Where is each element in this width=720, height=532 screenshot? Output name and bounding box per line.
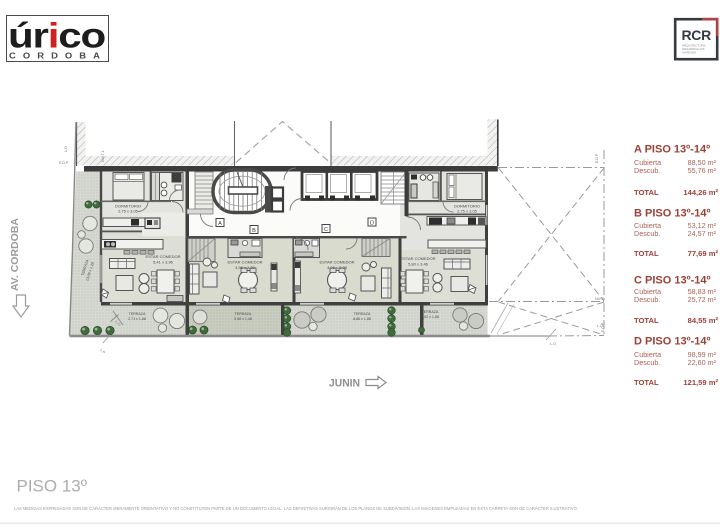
svg-text:Descub.: Descub. <box>634 295 660 304</box>
svg-text:144,26 m²: 144,26 m² <box>683 188 718 197</box>
svg-text:E.D.P: E.D.P <box>59 161 69 165</box>
svg-text:NIV.T.1: NIV.T.1 <box>101 151 105 162</box>
svg-text:4,95 x 3,30: 4,95 x 3,30 <box>235 265 256 270</box>
svg-text:A: A <box>218 221 222 227</box>
svg-text:D PISO 13º-14º: D PISO 13º-14º <box>634 336 711 348</box>
svg-text:8,02 x 1,88: 8,02 x 1,88 <box>421 315 439 319</box>
svg-text:55,76 m²: 55,76 m² <box>688 166 717 175</box>
svg-text:L.O: L.O <box>64 146 68 152</box>
svg-text:84,55 m²: 84,55 m² <box>688 316 719 325</box>
svg-text:TOTAL: TOTAL <box>634 378 659 387</box>
svg-text:Descub.: Descub. <box>634 358 660 367</box>
svg-text:2,75 x 3,05: 2,75 x 3,05 <box>457 209 478 214</box>
svg-text:AV. CORDOBA: AV. CORDOBA <box>9 218 21 291</box>
svg-text:TOTAL: TOTAL <box>634 249 659 258</box>
svg-text:CORDOBA: CORDOBA <box>9 52 107 61</box>
svg-text:úrico: úrico <box>8 17 106 56</box>
svg-text:L.O: L.O <box>550 342 556 346</box>
svg-text:TERRAZA: TERRAZA <box>422 310 439 314</box>
svg-text:2,71 x 1,88: 2,71 x 1,88 <box>128 317 146 321</box>
svg-text:B: B <box>252 228 256 234</box>
svg-text:TOTAL: TOTAL <box>634 316 659 325</box>
svg-text:25,72 m²: 25,72 m² <box>688 295 717 304</box>
svg-text:JUNIN: JUNIN <box>329 378 360 390</box>
svg-text:TERRAZA: TERRAZA <box>235 312 252 316</box>
svg-text:9,98 x 1,48: 9,98 x 1,48 <box>234 317 252 321</box>
svg-text:2,75 x 3,05: 2,75 x 3,05 <box>118 209 139 214</box>
svg-text:ESTAR COMEDOR: ESTAR COMEDOR <box>227 260 262 265</box>
svg-text:Descub.: Descub. <box>634 166 660 175</box>
svg-text:5,41 x 3,96: 5,41 x 3,96 <box>153 260 174 265</box>
svg-text:L.O: L.O <box>597 324 603 328</box>
svg-text:RCR: RCR <box>682 27 712 43</box>
svg-text:E.D.P: E.D.P <box>595 153 599 163</box>
svg-text:C: C <box>324 227 328 233</box>
svg-text:B PISO 13º-14º: B PISO 13º-14º <box>634 208 711 220</box>
svg-text:77,69 m²: 77,69 m² <box>688 249 719 258</box>
svg-text:A PISO 13º-14º: A PISO 13º-14º <box>634 144 710 156</box>
svg-text:ESTAR COMEDOR: ESTAR COMEDOR <box>145 254 180 259</box>
svg-text:24,57 m²: 24,57 m² <box>688 229 717 238</box>
svg-text:NIV.T.: NIV.T. <box>595 297 605 301</box>
svg-text:PISO 13º: PISO 13º <box>17 477 87 496</box>
svg-text:4,96 x 3,03: 4,96 x 3,03 <box>327 265 348 270</box>
svg-text:ESTAR COMEDOR: ESTAR COMEDOR <box>400 256 435 261</box>
svg-text:C PISO 13º-14º: C PISO 13º-14º <box>634 275 711 287</box>
svg-text:VIVIENDA: VIVIENDA <box>682 51 696 55</box>
svg-text:Descub.: Descub. <box>634 229 660 238</box>
svg-text:5,80 x 3,46: 5,80 x 3,46 <box>408 262 429 267</box>
svg-text:8,86 x 1,88: 8,86 x 1,88 <box>353 317 371 321</box>
svg-text:TERRAZA: TERRAZA <box>129 312 146 316</box>
svg-text:ESTAR COMEDOR: ESTAR COMEDOR <box>319 260 354 265</box>
svg-text:LAS MEDIDAS EXPRESADAS SON DE: LAS MEDIDAS EXPRESADAS SON DE CARÁCTER M… <box>14 506 578 511</box>
svg-text:22,60 m²: 22,60 m² <box>688 358 717 367</box>
svg-text:D: D <box>370 220 374 226</box>
svg-text:121,59 m²: 121,59 m² <box>683 378 718 387</box>
svg-text:TERRAZA: TERRAZA <box>354 312 371 316</box>
svg-text:TOTAL: TOTAL <box>634 188 659 197</box>
